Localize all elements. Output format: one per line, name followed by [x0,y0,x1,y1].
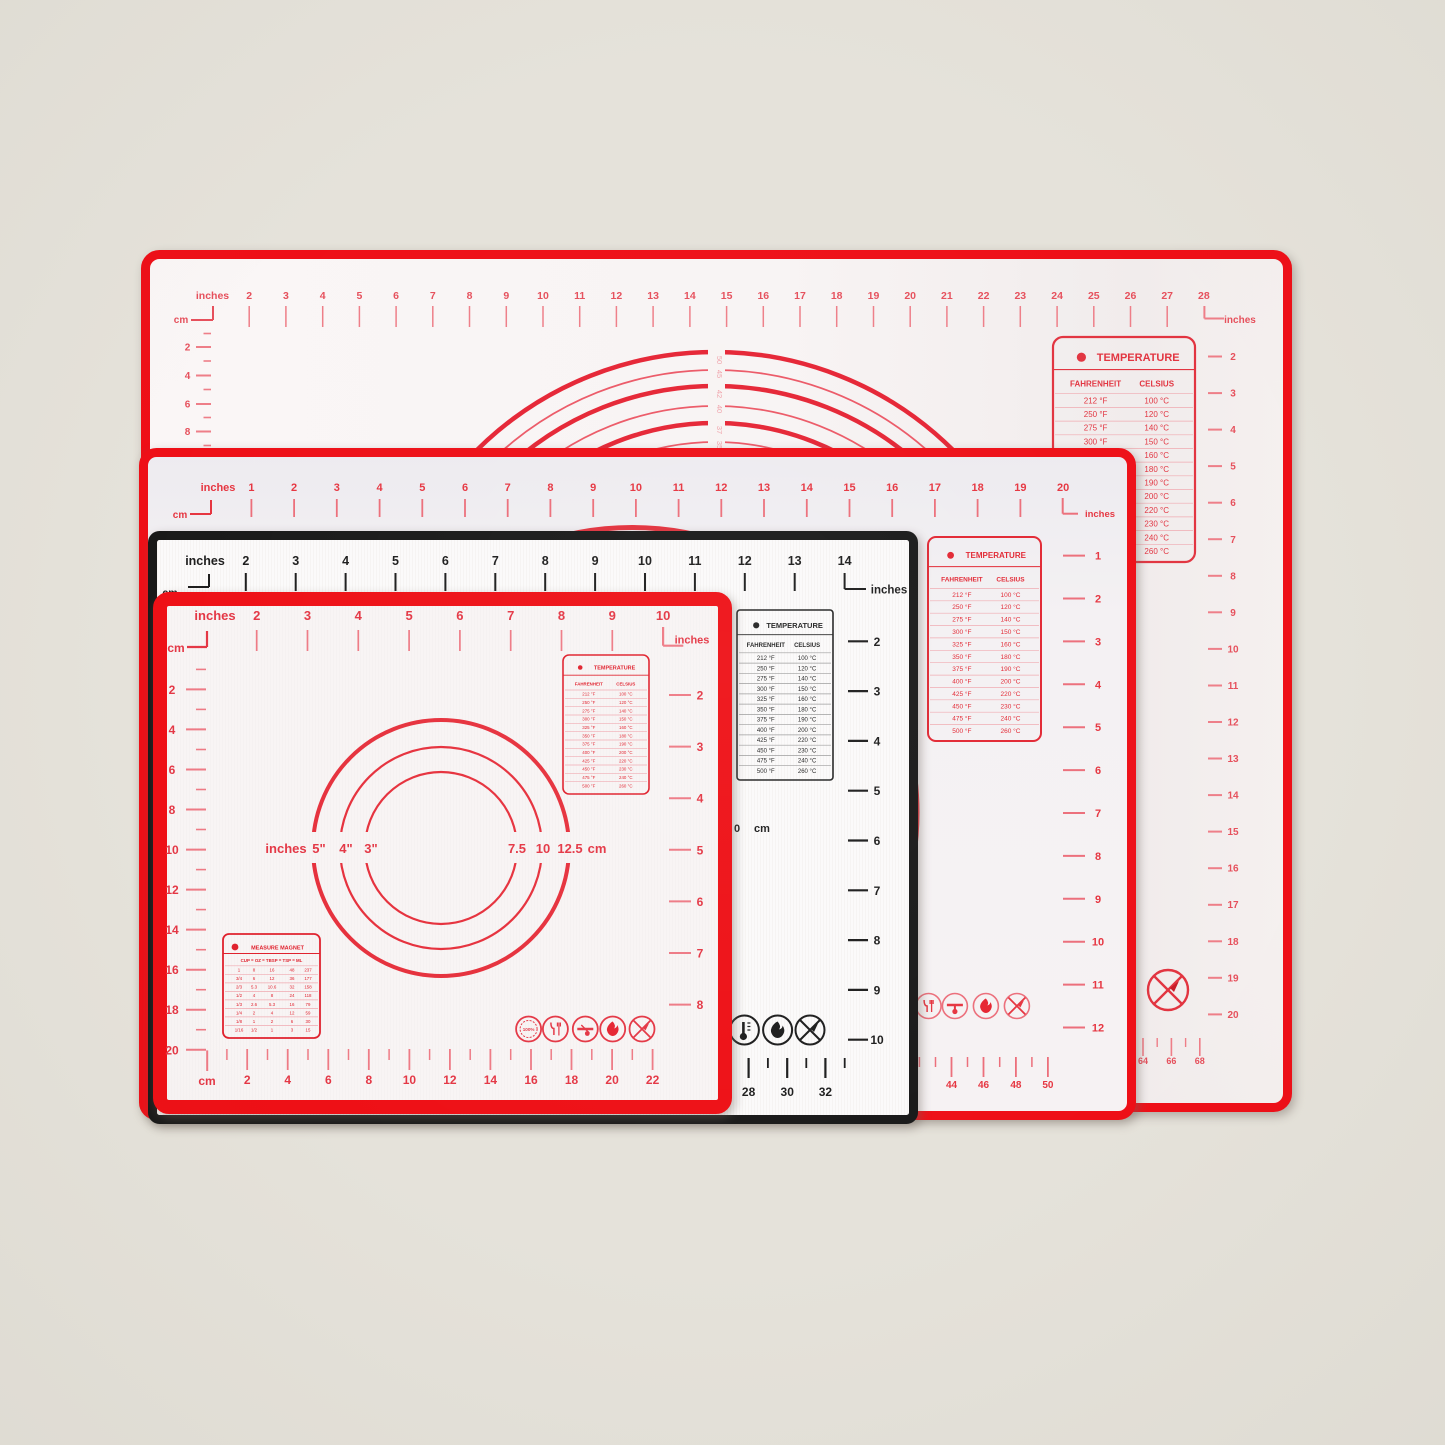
svg-text:500 °F: 500 °F [757,769,775,775]
svg-text:4: 4 [1230,425,1236,436]
svg-text:240 °C: 240 °C [1001,715,1021,723]
svg-text:16: 16 [165,963,179,977]
svg-text:32: 32 [819,1085,833,1099]
svg-text:14: 14 [165,923,179,937]
svg-text:7.5: 7.5 [508,841,526,856]
svg-text:10: 10 [1227,644,1239,655]
svg-text:8: 8 [697,998,704,1012]
svg-text:100 °C: 100 °C [798,656,817,662]
svg-text:118: 118 [305,993,313,998]
svg-text:4: 4 [874,734,881,748]
svg-text:120 °C: 120 °C [1001,603,1021,611]
svg-text:12: 12 [443,1073,457,1087]
svg-text:14: 14 [1227,791,1239,802]
svg-text:12: 12 [290,1010,295,1015]
svg-text:4: 4 [377,482,384,494]
svg-text:230 °C: 230 °C [1001,702,1021,710]
svg-text:8: 8 [1230,571,1236,582]
svg-text:325 °F: 325 °F [757,697,775,703]
svg-text:425 °F: 425 °F [582,758,595,763]
svg-text:140 °C: 140 °C [619,708,632,713]
svg-text:TEMPERATURE: TEMPERATURE [766,621,823,630]
svg-text:10: 10 [403,1073,417,1087]
svg-text:230 °C: 230 °C [798,748,817,754]
svg-text:260 °C: 260 °C [1144,547,1169,556]
svg-text:16: 16 [270,968,275,973]
svg-text:220 °C: 220 °C [1144,506,1169,515]
svg-text:15: 15 [306,1027,311,1032]
svg-text:8: 8 [365,1073,372,1087]
svg-text:14: 14 [684,290,696,302]
svg-text:inches: inches [1085,509,1115,520]
svg-text:4: 4 [185,371,191,382]
svg-text:180 °C: 180 °C [619,733,632,738]
svg-text:inches: inches [185,554,225,568]
svg-text:450 °F: 450 °F [757,748,775,754]
svg-text:10: 10 [638,554,652,568]
svg-text:18: 18 [565,1073,579,1087]
svg-text:8: 8 [467,290,473,302]
svg-text:177: 177 [304,976,312,981]
svg-text:7: 7 [505,482,511,494]
svg-text:9: 9 [874,983,881,997]
svg-text:4: 4 [284,1073,291,1087]
svg-text:1/8: 1/8 [236,1019,243,1024]
svg-text:3/4: 3/4 [236,976,243,981]
svg-text:10: 10 [1092,937,1104,949]
svg-text:TEMPERATURE: TEMPERATURE [594,666,636,672]
svg-text:18: 18 [165,1003,179,1017]
svg-text:140 °C: 140 °C [798,677,817,683]
svg-text:cm: cm [167,641,184,655]
svg-text:275 °F: 275 °F [1084,424,1108,433]
svg-text:300 °F: 300 °F [582,717,595,722]
svg-text:21: 21 [941,290,953,302]
svg-text:190 °C: 190 °C [1144,479,1169,488]
svg-text:CELSIUS: CELSIUS [996,576,1025,583]
svg-text:18: 18 [1227,937,1239,948]
svg-text:4: 4 [342,554,349,568]
svg-text:13: 13 [647,290,659,302]
svg-text:6: 6 [874,834,881,848]
svg-text:325 °F: 325 °F [582,725,595,730]
svg-text:45: 45 [715,370,724,378]
svg-text:3: 3 [334,482,340,494]
svg-text:TEMPERATURE: TEMPERATURE [966,551,1027,560]
svg-text:475 °F: 475 °F [757,759,775,765]
svg-text:5: 5 [697,843,704,857]
svg-text:30: 30 [781,1085,795,1099]
svg-text:8: 8 [547,482,553,494]
svg-text:9: 9 [1230,608,1236,619]
svg-text:2: 2 [1230,352,1236,363]
svg-text:6: 6 [393,290,399,302]
svg-text:16: 16 [524,1073,538,1087]
svg-text:50: 50 [715,356,724,364]
svg-text:6: 6 [456,608,463,623]
svg-text:190 °C: 190 °C [1001,665,1021,673]
svg-text:10: 10 [536,841,550,856]
svg-text:190 °C: 190 °C [619,742,632,747]
svg-text:cm: cm [173,510,188,521]
svg-text:5.3: 5.3 [269,1002,276,1007]
svg-text:7: 7 [697,947,704,961]
svg-text:100 °C: 100 °C [1144,396,1169,405]
svg-text:375 °F: 375 °F [582,742,595,747]
svg-text:1: 1 [1095,551,1101,563]
svg-text:79: 79 [306,1002,311,1007]
svg-text:300 °F: 300 °F [952,628,971,636]
svg-text:7: 7 [874,884,881,898]
svg-text:15: 15 [1227,827,1239,838]
svg-text:17: 17 [929,482,941,494]
svg-text:275 °F: 275 °F [952,616,971,624]
svg-text:44: 44 [946,1080,958,1091]
svg-text:160 °C: 160 °C [619,725,632,730]
svg-text:6: 6 [1230,498,1236,509]
svg-text:48: 48 [290,968,295,973]
svg-text:300 °F: 300 °F [1084,437,1108,446]
svg-text:4: 4 [355,608,363,623]
svg-text:400 °F: 400 °F [952,678,971,686]
svg-text:5.3: 5.3 [251,985,258,990]
svg-text:12: 12 [165,883,179,897]
svg-text:230 °C: 230 °C [619,767,632,772]
svg-text:120 °C: 120 °C [798,666,817,672]
svg-text:150 °C: 150 °C [1144,437,1169,446]
svg-text:13: 13 [788,554,802,568]
svg-text:3": 3" [364,841,377,856]
svg-text:220 °C: 220 °C [798,738,817,744]
svg-text:5": 5" [312,841,325,856]
svg-text:212 °F: 212 °F [952,591,971,599]
svg-text:140 °C: 140 °C [1144,424,1169,433]
svg-text:FAHRENHEIT: FAHRENHEIT [747,643,786,649]
svg-text:200 °C: 200 °C [798,728,817,734]
svg-text:325 °F: 325 °F [952,640,971,648]
svg-text:46: 46 [978,1080,990,1091]
svg-text:CELSIUS: CELSIUS [1139,379,1174,388]
svg-text:50: 50 [1042,1080,1054,1091]
svg-text:5: 5 [356,290,362,302]
svg-text:inches: inches [194,608,235,623]
svg-text:4": 4" [339,841,352,856]
svg-text:9: 9 [609,608,616,623]
svg-text:9: 9 [592,554,599,568]
svg-text:inches: inches [196,290,229,302]
svg-text:400 °F: 400 °F [757,728,775,734]
svg-text:1/2: 1/2 [236,993,243,998]
svg-text:2: 2 [185,343,191,354]
svg-text:25: 25 [1088,290,1100,302]
svg-text:200 °C: 200 °C [1001,678,1021,686]
svg-text:9: 9 [590,482,596,494]
svg-text:TEMPERATURE: TEMPERATURE [1097,352,1180,364]
svg-text:64: 64 [1138,1056,1148,1066]
svg-text:2/3: 2/3 [236,985,243,990]
svg-text:9: 9 [503,290,509,302]
svg-text:26: 26 [1125,290,1137,302]
svg-text:2: 2 [253,608,260,623]
svg-text:16: 16 [757,290,769,302]
svg-text:3: 3 [1230,389,1236,400]
svg-text:48: 48 [1010,1080,1022,1091]
svg-text:cm: cm [588,841,607,856]
svg-text:240 °C: 240 °C [1144,533,1169,542]
svg-text:220 °C: 220 °C [1001,690,1021,698]
svg-text:5: 5 [1230,462,1236,473]
svg-text:19: 19 [1227,973,1239,984]
svg-text:14: 14 [801,482,814,494]
svg-text:10: 10 [656,608,670,623]
svg-text:8: 8 [1095,851,1101,863]
svg-text:3: 3 [874,685,881,699]
svg-text:12: 12 [611,290,623,302]
svg-text:CELSIUS: CELSIUS [616,681,635,686]
svg-text:160 °C: 160 °C [1001,640,1021,648]
svg-text:180 °C: 180 °C [1001,653,1021,661]
svg-text:240 °C: 240 °C [619,775,632,780]
svg-text:2: 2 [291,482,297,494]
svg-text:10: 10 [165,843,179,857]
svg-text:5: 5 [1095,722,1101,734]
svg-text:37: 37 [715,426,724,434]
svg-text:10.6: 10.6 [268,985,277,990]
svg-text:10: 10 [870,1033,884,1047]
svg-text:150 °C: 150 °C [798,687,817,693]
svg-text:11: 11 [673,482,685,494]
svg-text:7: 7 [1230,535,1236,546]
svg-text:8: 8 [169,803,176,817]
svg-text:66: 66 [1166,1056,1176,1066]
svg-text:2: 2 [169,683,176,697]
svg-text:275 °F: 275 °F [757,677,775,683]
svg-text:FAHRENHEIT: FAHRENHEIT [941,576,983,583]
svg-text:6: 6 [325,1073,332,1087]
svg-text:6: 6 [462,482,468,494]
svg-text:12: 12 [738,554,752,568]
svg-text:2: 2 [244,1073,251,1087]
svg-text:20: 20 [1057,482,1069,494]
svg-text:11: 11 [688,554,701,568]
svg-text:24: 24 [290,993,295,998]
svg-text:5: 5 [874,784,881,798]
svg-text:20: 20 [165,1043,179,1057]
svg-text:42: 42 [715,390,724,398]
svg-text:4: 4 [1095,679,1102,691]
svg-text:23: 23 [1014,290,1026,302]
svg-text:180 °C: 180 °C [798,707,817,713]
svg-text:30: 30 [306,1019,311,1024]
svg-text:425 °F: 425 °F [757,738,775,744]
svg-text:212 °F: 212 °F [582,692,595,697]
svg-text:350 °F: 350 °F [757,707,775,713]
svg-text:inches: inches [265,841,306,856]
svg-text:2: 2 [874,635,881,649]
svg-text:2: 2 [242,554,249,568]
svg-text:2: 2 [246,290,252,302]
svg-text:15: 15 [721,290,733,302]
svg-text:13: 13 [758,482,770,494]
svg-text:FAHRENHEIT: FAHRENHEIT [1070,379,1121,388]
svg-text:32: 32 [290,985,295,990]
svg-text:260 °C: 260 °C [1001,727,1021,735]
svg-text:12: 12 [1092,1023,1104,1035]
svg-text:20: 20 [1227,1010,1239,1021]
svg-text:475 °F: 475 °F [952,715,971,723]
svg-text:425 °F: 425 °F [952,690,971,698]
svg-text:6: 6 [1095,765,1101,777]
svg-text:20: 20 [904,290,916,302]
svg-text:100 °C: 100 °C [619,692,632,697]
svg-text:14: 14 [838,554,852,568]
svg-text:20: 20 [605,1073,619,1087]
svg-text:1: 1 [248,482,254,494]
svg-text:220 °C: 220 °C [619,758,632,763]
svg-text:140 °C: 140 °C [1001,616,1021,624]
svg-text:59: 59 [306,1010,311,1015]
svg-text:inches: inches [1224,315,1256,326]
svg-text:16: 16 [1227,864,1239,875]
svg-text:19: 19 [868,290,880,302]
svg-text:36: 36 [290,976,295,981]
svg-text:28: 28 [1198,290,1210,302]
svg-text:inches: inches [201,482,236,494]
svg-text:3: 3 [304,608,311,623]
svg-text:100%: 100% [523,1027,535,1032]
svg-text:7: 7 [507,608,514,623]
svg-text:CUP = OZ = TBSP = TSP = ML: CUP = OZ = TBSP = TSP = ML [241,958,303,963]
svg-text:cm: cm [754,823,770,835]
svg-text:200 °C: 200 °C [619,750,632,755]
svg-text:22: 22 [978,290,990,302]
svg-text:212 °F: 212 °F [1084,396,1108,405]
svg-text:7: 7 [1095,808,1101,820]
svg-text:250 °F: 250 °F [582,700,595,705]
svg-text:12: 12 [1227,718,1239,729]
svg-text:300 °F: 300 °F [757,687,775,693]
svg-text:260 °C: 260 °C [619,783,632,788]
svg-text:40: 40 [715,405,724,413]
svg-text:68: 68 [1195,1056,1205,1066]
svg-text:200 °C: 200 °C [1144,492,1169,501]
svg-text:2.6: 2.6 [251,1002,258,1007]
svg-text:120 °C: 120 °C [1144,410,1169,419]
svg-text:100 °C: 100 °C [1001,591,1021,599]
svg-text:160 °C: 160 °C [1144,451,1169,460]
svg-text:375 °F: 375 °F [952,665,971,673]
svg-text:5: 5 [392,554,399,568]
svg-text:237: 237 [304,968,312,973]
svg-text:MEASURE MAGNET: MEASURE MAGNET [251,946,305,952]
svg-text:11: 11 [1228,681,1239,692]
svg-text:2: 2 [1095,594,1101,606]
svg-text:cm: cm [174,315,189,326]
svg-text:6: 6 [697,895,704,909]
svg-text:4: 4 [697,792,704,806]
svg-text:17: 17 [1227,900,1239,911]
svg-text:450 °F: 450 °F [952,702,971,710]
svg-text:7: 7 [492,554,499,568]
svg-text:4: 4 [320,290,326,302]
svg-text:18: 18 [831,290,843,302]
svg-text:475 °F: 475 °F [582,775,595,780]
svg-text:13: 13 [1227,754,1239,765]
svg-text:1/4: 1/4 [236,1010,243,1015]
svg-text:240 °C: 240 °C [798,759,817,765]
svg-text:3: 3 [292,554,299,568]
svg-text:350 °F: 350 °F [952,653,971,661]
svg-text:275 °F: 275 °F [582,708,595,713]
svg-text:1/3: 1/3 [236,1002,243,1007]
svg-text:1/16: 1/16 [235,1027,244,1032]
svg-text:250 °F: 250 °F [952,603,971,611]
svg-text:158: 158 [304,985,312,990]
svg-text:FAHRENHEIT: FAHRENHEIT [575,681,603,686]
svg-text:160 °C: 160 °C [798,697,817,703]
svg-text:8: 8 [542,554,549,568]
svg-text:16: 16 [886,482,898,494]
svg-text:CELSIUS: CELSIUS [794,643,820,649]
svg-text:6: 6 [169,763,176,777]
svg-text:8: 8 [185,427,191,438]
svg-text:24: 24 [1051,290,1063,302]
svg-text:5: 5 [419,482,425,494]
svg-text:6: 6 [442,554,449,568]
svg-text:150 °C: 150 °C [619,717,632,722]
svg-text:3: 3 [1095,636,1101,648]
svg-text:11: 11 [574,290,585,302]
svg-text:1/2: 1/2 [251,1027,258,1032]
svg-text:cm: cm [198,1074,215,1088]
svg-text:150 °C: 150 °C [1001,628,1021,636]
svg-text:14: 14 [484,1073,498,1087]
svg-text:8: 8 [558,608,565,623]
svg-text:190 °C: 190 °C [798,718,817,724]
svg-text:7: 7 [430,290,436,302]
svg-text:10: 10 [537,290,549,302]
svg-text:8: 8 [874,934,881,948]
svg-text:400 °F: 400 °F [582,750,595,755]
svg-text:12: 12 [715,482,727,494]
svg-text:27: 27 [1161,290,1173,302]
svg-text:500 °F: 500 °F [952,727,971,735]
svg-text:10: 10 [630,482,642,494]
svg-text:11: 11 [1092,980,1104,992]
svg-text:500 °F: 500 °F [582,783,595,788]
svg-text:12.5: 12.5 [557,841,582,856]
svg-text:350 °F: 350 °F [582,733,595,738]
svg-text:3: 3 [697,740,704,754]
svg-text:16: 16 [290,1002,295,1007]
svg-text:212 °F: 212 °F [757,656,775,662]
svg-text:120 °C: 120 °C [619,700,632,705]
svg-text:230 °C: 230 °C [1144,520,1169,529]
svg-text:15: 15 [843,482,855,494]
svg-text:250 °F: 250 °F [757,666,775,672]
svg-text:28: 28 [742,1085,756,1099]
svg-text:4: 4 [169,723,176,737]
svg-text:12: 12 [270,976,275,981]
svg-text:180 °C: 180 °C [1144,465,1169,474]
svg-text:0: 0 [734,823,740,835]
svg-text:450 °F: 450 °F [582,767,595,772]
svg-text:inches: inches [871,585,907,597]
svg-text:18: 18 [971,482,983,494]
svg-text:17: 17 [794,290,806,302]
svg-text:22: 22 [646,1073,660,1087]
svg-text:250 °F: 250 °F [1084,410,1108,419]
